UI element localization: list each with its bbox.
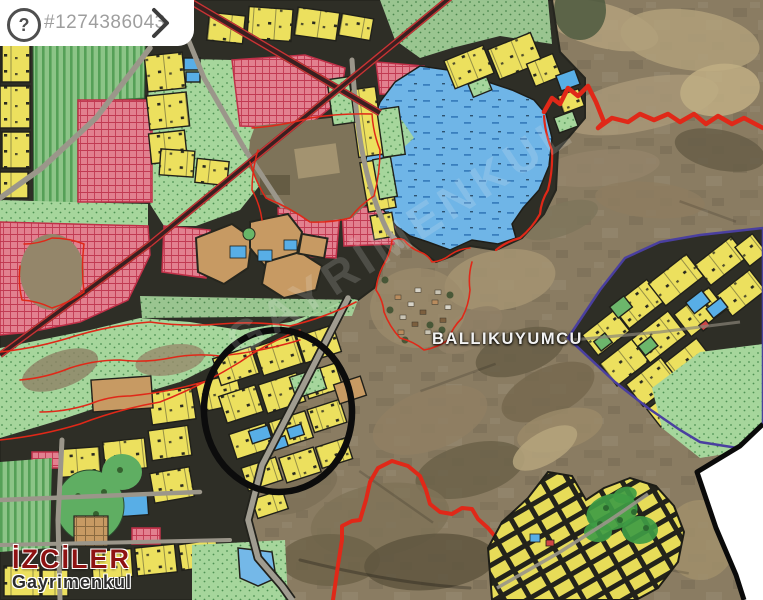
listing-id-badge[interactable]: ? #1274386043: [0, 0, 194, 46]
place-name-label: BALLIKUYUMCU: [432, 330, 583, 349]
listing-photo-map: ? #1274386043 BALLIKUYUMCU GAYRİMENKUL İ…: [0, 0, 763, 600]
zoning-plan-satellite-map: [0, 0, 763, 600]
agency-logo-subtitle: Gayrimenkul: [12, 573, 132, 592]
help-icon[interactable]: ?: [7, 8, 41, 42]
listing-id-text: #1274386043: [44, 12, 166, 34]
agency-logo: İZCİLER Gayrimenkul: [12, 545, 132, 592]
chevron-right-icon[interactable]: [150, 7, 172, 39]
agency-logo-name: İZCİLER: [12, 545, 132, 573]
